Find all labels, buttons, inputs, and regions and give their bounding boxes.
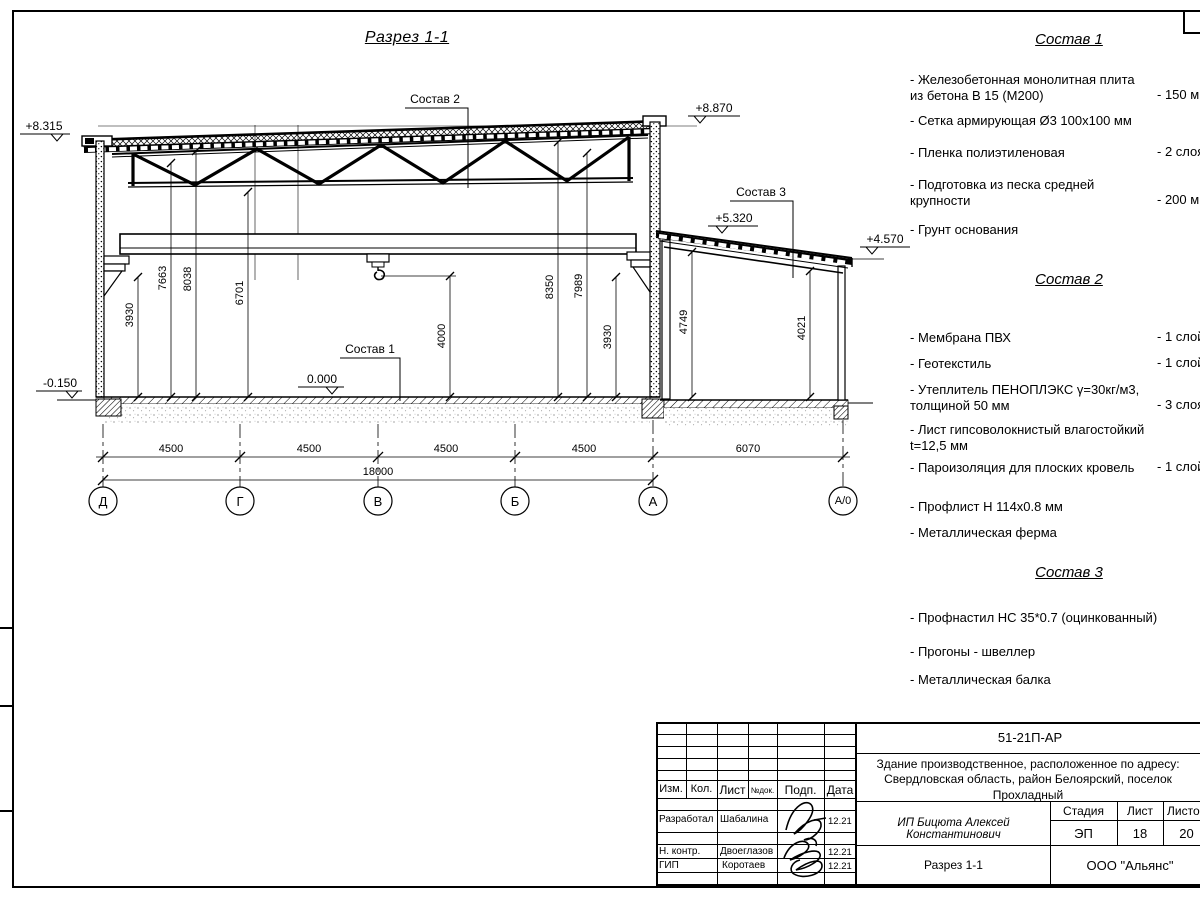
organization-name: ООО "Альянс" xyxy=(1050,858,1200,873)
signer-date: 12.21 xyxy=(828,861,852,872)
col-kol: Кол. xyxy=(686,783,717,795)
signer-name: Коротаев xyxy=(722,860,765,871)
sheets-label: Листов xyxy=(1163,804,1200,818)
col-podp: Подп. xyxy=(777,783,824,797)
sheet-title: Разрез 1-1 xyxy=(857,858,1050,872)
title-block: Изм. Кол. Лист №док. Подп. Дата Разработ… xyxy=(0,0,1200,900)
sheets-value: 20 xyxy=(1163,826,1200,841)
sheet-value: 18 xyxy=(1117,826,1163,841)
signer-role: Разработал xyxy=(659,814,713,825)
stage-label: Стадия xyxy=(1050,804,1117,818)
signer-role: Н. контр. xyxy=(659,846,700,857)
col-ndok: №док. xyxy=(748,786,777,795)
signer-date: 12.21 xyxy=(828,816,852,827)
signer-role: ГИП xyxy=(659,860,679,871)
col-izm: Изм. xyxy=(656,783,686,795)
object-description: Здание производственное, расположенное п… xyxy=(862,757,1194,803)
col-list: Лист xyxy=(717,783,748,797)
stage-value: ЭП xyxy=(1050,826,1117,841)
signer-name: Двоеглазов xyxy=(720,846,773,857)
signer-name: Шабалина xyxy=(720,814,768,825)
designer-name: ИП Бицюта Алексей Константинович xyxy=(857,817,1050,841)
doc-code: 51-21П-АР xyxy=(857,730,1200,745)
signature-scribbles xyxy=(778,796,826,882)
drawing-sheet: Разрез 1-1 Состав 2 Состав 3 Состав 1 +8… xyxy=(0,0,1200,900)
col-data: Дата xyxy=(824,783,856,797)
signer-date: 12.21 xyxy=(828,847,852,858)
sheet-label: Лист xyxy=(1117,804,1163,818)
